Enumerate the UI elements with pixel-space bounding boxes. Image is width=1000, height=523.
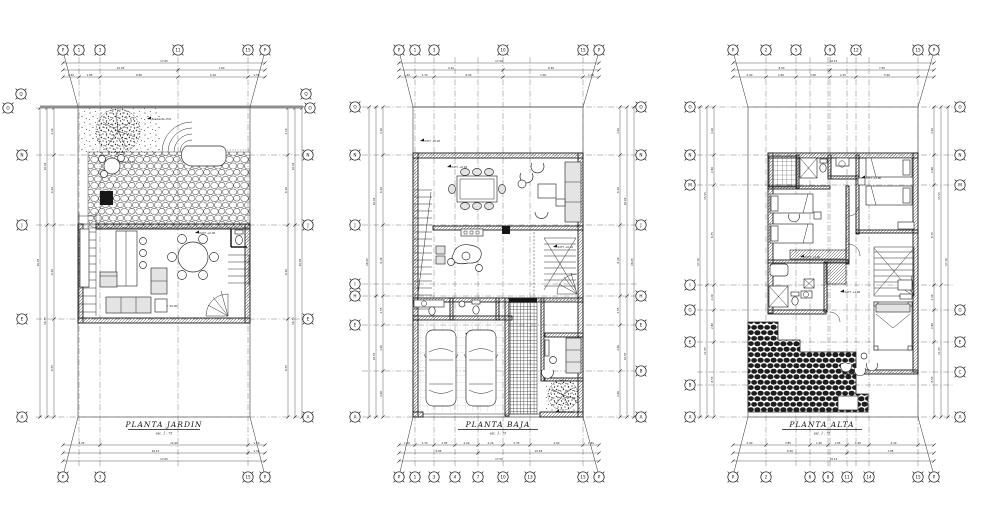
dimension-label: 8.75 (930, 232, 934, 238)
dimension-label: 6.55 (710, 376, 714, 382)
level-note: N.P.T. +2.80 (845, 290, 861, 294)
grid-bubble: P (394, 45, 405, 56)
dimension-label: 15.55 (703, 192, 707, 200)
grid-bubble: P (594, 472, 605, 483)
svg-text:A: A (21, 415, 24, 420)
svg-text:J: J (20, 223, 22, 228)
svg-text:1: 1 (414, 48, 417, 53)
grid-bubble: P (728, 45, 739, 56)
dimension-label: 1.65 (835, 441, 841, 445)
grid-bubble: 3 (429, 472, 440, 483)
grid-bubble: P (594, 45, 605, 56)
dimension-label: 8.50 (779, 66, 785, 70)
svg-text:3: 3 (99, 475, 102, 480)
dimension-label: 10.55 (372, 352, 376, 360)
svg-text:B: B (689, 383, 692, 388)
grid-bubble: E (636, 320, 647, 331)
svg-text:B: B (640, 369, 643, 374)
dimension-label: 6.10 (379, 187, 383, 193)
grid-bubble: 9 (825, 45, 836, 56)
svg-text:E: E (354, 323, 357, 328)
grid-bubble: 3 (95, 45, 106, 56)
dimension-label: 7.00 (540, 73, 546, 77)
dimension-label: 2.20 (930, 294, 934, 300)
grid-bubble: 11 (173, 45, 184, 56)
svg-text:1: 1 (414, 475, 417, 480)
dimension-label: 1.40 (588, 73, 594, 77)
dimension-label: 11.55 (937, 347, 941, 355)
dimension-label: 2.90 (747, 73, 753, 77)
svg-text:10: 10 (500, 475, 506, 480)
svg-text:8: 8 (827, 475, 830, 480)
svg-text:12: 12 (853, 48, 859, 53)
dimension-label: 1.70 (422, 73, 428, 77)
svg-text:N: N (306, 153, 309, 158)
svg-text:J: J (639, 223, 641, 228)
dimension-label: 8.75 (710, 232, 714, 238)
dimension-label: 17.65 (160, 59, 168, 63)
dimension-label: 7.65 (879, 66, 885, 70)
grid-bubble: 15 (578, 45, 589, 56)
dimension-label: 15.55 (937, 192, 941, 200)
plan-scale-1: esc. 1 : 75 (156, 432, 173, 436)
svg-text:11: 11 (844, 475, 850, 480)
dimension-label: 2.80 (710, 323, 714, 329)
planter-box (100, 191, 113, 205)
entry-threshold (509, 298, 537, 302)
grid-bubble: J (636, 220, 647, 231)
dimension-label: 4.60 (554, 441, 560, 445)
svg-text:G: G (958, 308, 961, 313)
dimension-label: 6.85 (436, 449, 442, 453)
grid-bubble: 3 (429, 45, 440, 56)
plan-scale-2: esc. 1 : 75 (490, 432, 507, 436)
dimension-label: 6.10 (284, 187, 288, 193)
dimension-label: 6.20 (379, 257, 383, 263)
svg-text:N: N (353, 153, 356, 158)
grid-bubble: J (17, 220, 28, 231)
grid-bubble: P (260, 45, 271, 56)
dimension-label: 6.10 (616, 187, 620, 193)
grid-bubble: 1 (410, 472, 421, 483)
dimension-label: 26.95 (298, 258, 302, 266)
terrace-opening (838, 396, 858, 410)
dimension-label: 26.95 (630, 258, 634, 266)
svg-text:A: A (640, 415, 643, 420)
grid-bubble: O (955, 102, 966, 113)
dimension-label: 10.65 (535, 449, 543, 453)
svg-text:7: 7 (477, 475, 480, 480)
dimension-label: 12.90 (170, 441, 178, 445)
svg-text:15: 15 (915, 475, 921, 480)
dimension-label: 8.20 (284, 269, 288, 275)
car-2 (464, 330, 498, 406)
blueprint-sheet: 1.401.856.806.101.5010.057.6017.653.2512… (0, 0, 1000, 523)
dimension-label: 4.10 (284, 128, 288, 134)
grid-bubble: P (58, 472, 69, 483)
dimension-label: 7.60 (219, 66, 225, 70)
grid-bubble: A (955, 412, 966, 423)
dimension-label: 27.10 (944, 258, 948, 266)
level-note: N.P.T. +0.45 (558, 245, 574, 249)
grid-bubble: N (685, 150, 696, 161)
dimension-label: 8.55 (284, 365, 288, 371)
closet-hatch-block (826, 262, 846, 284)
grid-bubble: 2 (761, 45, 772, 56)
svg-text:2: 2 (765, 475, 768, 480)
svg-text:4: 4 (454, 475, 457, 480)
grid-bubble: E (685, 337, 696, 348)
svg-text:E: E (689, 340, 692, 345)
dimension-label: 11.55 (703, 347, 707, 355)
dimension-label: 1.60 (816, 441, 822, 445)
grid-bubble: E (17, 314, 28, 325)
dimension-label: 4.10 (50, 128, 54, 134)
svg-text:A: A (354, 415, 357, 420)
grid-bubble: A (636, 412, 647, 423)
grid-bubble: O (3, 103, 14, 114)
level-note: N.P.T. +0.30 (200, 231, 216, 235)
toilet-1 (235, 230, 243, 245)
dimension-label: 10.55 (623, 352, 627, 360)
svg-text:3: 3 (433, 475, 436, 480)
dimension-label: 4.00 (379, 391, 383, 397)
svg-text:H: H (639, 294, 642, 299)
grid-bubble: 11 (842, 472, 853, 483)
master-bed (874, 302, 912, 350)
dimension-label: 26.95 (365, 258, 369, 266)
dimension-label: 16.15 (830, 457, 838, 461)
dimension-label: 2.55 (379, 307, 383, 313)
plan-title-2: PLANTA BAJA (465, 420, 531, 429)
grid-bubble: 15 (243, 45, 254, 56)
grid-bubble: Q (301, 89, 312, 100)
dimension-label: 10.20 (291, 162, 295, 170)
grid-bubble: H (350, 291, 361, 302)
dimension-label: 16.75 (43, 317, 47, 325)
dimension-label: 10.20 (43, 162, 47, 170)
grid-bubble: H (636, 291, 647, 302)
grid-bubble: P (929, 472, 940, 483)
grid-bubble: M (955, 180, 966, 191)
dimension-label: 6.55 (930, 376, 934, 382)
dimension-label: 2.20 (488, 441, 494, 445)
grid-bubble: 4 (450, 472, 461, 483)
dimension-label: 2.25 (840, 73, 846, 77)
dimension-label: 2.35 (514, 441, 520, 445)
grid-bubble: 3 (95, 472, 106, 483)
grid-bubble: O (305, 103, 316, 114)
grid-bubble: A (350, 412, 361, 423)
dimension-label: 8.55 (50, 365, 54, 371)
floor-plan-drawing: 1.401.856.806.101.5010.057.6017.653.2512… (0, 0, 1000, 523)
svg-text:E: E (640, 323, 643, 328)
dimension-label: 16.40 (623, 197, 627, 205)
svg-text:N: N (639, 153, 642, 158)
dimension-label: 3.25 (79, 441, 85, 445)
grid-bubble: I (685, 280, 696, 291)
grid-bubble: 10 (498, 45, 509, 56)
dimension-label: 5.40 (884, 73, 890, 77)
svg-text:3: 3 (433, 48, 436, 53)
grid-bubble: B (685, 380, 696, 391)
dimension-label: 17.50 (495, 457, 503, 461)
svg-text:E: E (307, 317, 310, 322)
dimension-label: 6.00 (466, 73, 472, 77)
grid-bubble: N (17, 150, 28, 161)
grid-bubble: O (685, 102, 696, 113)
svg-text:A: A (959, 415, 962, 420)
grid-bubble: P (394, 472, 405, 483)
grid-bubble: N (350, 150, 361, 161)
grid-bubble: 1 (74, 45, 85, 56)
grid-bubble: 15 (913, 45, 924, 56)
grid-bubble: Q (16, 89, 27, 100)
dimension-label: 10.05 (117, 66, 125, 70)
dimension-label: 2.00 (464, 441, 470, 445)
grid-bubble: A (685, 412, 696, 423)
grid-bubble: N (955, 150, 966, 161)
dimension-label: 6.80 (136, 73, 142, 77)
dimension-label: 27.10 (696, 258, 700, 266)
grid-bubble: G (955, 305, 966, 316)
grid-bubble: 12 (851, 45, 862, 56)
svg-text:J: J (353, 223, 355, 228)
dimension-label: 17.50 (495, 59, 503, 63)
dimension-label: 6.10 (210, 73, 216, 77)
plan-title-1: PLANTA JARDIN (124, 420, 202, 429)
dimension-label: 1.40 (588, 441, 594, 445)
svg-text:15: 15 (915, 48, 921, 53)
grid-bubble: 8 (823, 472, 834, 483)
svg-text:9: 9 (829, 48, 832, 53)
grid-bubble: A (17, 412, 28, 423)
curved-planter (181, 146, 226, 166)
dimension-label: 4.20 (710, 128, 714, 134)
grid-bubble: N (303, 150, 314, 161)
svg-text:15: 15 (580, 475, 586, 480)
svg-text:N: N (958, 153, 961, 158)
svg-text:G: G (688, 308, 691, 313)
closet-hatch-band (790, 250, 846, 259)
dimension-label: 4.00 (379, 345, 383, 351)
grid-bubble: 14 (864, 472, 875, 483)
dimension-label: 2.60 (710, 167, 714, 173)
grid-bubble: 2 (761, 472, 772, 483)
grid-bubble: E (955, 337, 966, 348)
dimension-label: 17.65 (160, 457, 168, 461)
svg-text:E: E (959, 340, 962, 345)
svg-text:10: 10 (500, 48, 506, 53)
grid-bubble: 15 (913, 472, 924, 483)
dimension-label: 2.60 (930, 167, 934, 173)
column-pier (502, 226, 510, 234)
grid-bubble: G (685, 305, 696, 316)
grid-bubble: 6 (805, 472, 816, 483)
svg-text:15: 15 (245, 48, 251, 53)
dimension-label: 26.95 (36, 258, 40, 266)
plan-scale-3: esc. 1 : 75 (814, 432, 831, 436)
skylight-grille (769, 156, 797, 187)
svg-text:1: 1 (78, 48, 81, 53)
grid-bubble: P (728, 472, 739, 483)
dimension-label: 4.00 (616, 345, 620, 351)
grid-bubble: N (636, 150, 647, 161)
dimension-label: 9.10 (448, 66, 454, 70)
dimension-label: 16.15 (830, 59, 838, 63)
svg-text:H: H (353, 294, 356, 299)
grid-bubble: B (636, 366, 647, 377)
grid-bubble: 1 (410, 45, 421, 56)
svg-text:A: A (307, 415, 310, 420)
grid-bubble: J (350, 220, 361, 231)
dimension-label: 8.40 (548, 66, 554, 70)
grid-bubble: J (303, 220, 314, 231)
grid-bubble: P (260, 472, 271, 483)
plan-title-3: PLANTA ALTA (788, 420, 854, 429)
grid-bubble: O (350, 102, 361, 113)
dimension-label: 2.80 (930, 323, 934, 329)
grid-bubble: 7 (473, 472, 484, 483)
grid-bubble: E (350, 320, 361, 331)
grid-bubble: C (955, 367, 966, 378)
entry-walkway (509, 302, 537, 414)
svg-text:13: 13 (527, 475, 533, 480)
grid-bubble: 5 (791, 45, 802, 56)
sheet-background (0, 0, 1000, 523)
svg-text:3: 3 (99, 48, 102, 53)
svg-text:6: 6 (809, 475, 812, 480)
grid-bubble: I (350, 279, 361, 290)
dimension-label: 2.60 (778, 73, 784, 77)
dimension-label: 1.85 (442, 441, 448, 445)
grid-bubble: P (929, 45, 940, 56)
dimension-label: 2.90 (747, 441, 753, 445)
dimension-label: 6.10 (50, 187, 54, 193)
dimension-label: 2.55 (616, 307, 620, 313)
entry-garden (545, 380, 581, 412)
dimension-label: 4.20 (379, 128, 383, 134)
dimension-label: 1.90 (855, 441, 861, 445)
dimension-label: 4.20 (930, 128, 934, 134)
svg-text:N: N (20, 153, 23, 158)
grid-bubble: E (303, 314, 314, 325)
grid-bubble: M (685, 180, 696, 191)
svg-text:11: 11 (175, 48, 181, 53)
grid-bubble: 15 (578, 472, 589, 483)
svg-text:I: I (689, 283, 690, 288)
svg-text:J: J (306, 223, 308, 228)
garden-tree (96, 109, 140, 153)
dimension-label: 16.40 (372, 197, 376, 205)
svg-text:5: 5 (795, 48, 798, 53)
dimension-label: 1.85 (87, 73, 93, 77)
svg-text:M: M (688, 183, 692, 188)
dimension-label: 8.20 (50, 269, 54, 275)
dimension-label: 4.30 (891, 441, 897, 445)
svg-text:2: 2 (765, 48, 768, 53)
dimension-label: 16.75 (291, 317, 295, 325)
garage (419, 320, 505, 412)
grid-bubble: 10 (498, 472, 509, 483)
dimension-label: 2.20 (710, 294, 714, 300)
svg-text:15: 15 (580, 48, 586, 53)
grid-bubble: 13 (525, 472, 536, 483)
dimension-label: 7.85 (888, 449, 894, 453)
dimension-label: 3.00 (810, 73, 816, 77)
dimension-label: 4.00 (616, 391, 620, 397)
svg-text:M: M (958, 183, 962, 188)
grid-bubble: A (303, 412, 314, 423)
svg-text:N: N (688, 153, 691, 158)
dimension-label: 1.70 (422, 441, 428, 445)
svg-text:I: I (354, 282, 355, 287)
grid-bubble: P (58, 45, 69, 56)
dimension-label: 16.15 (152, 449, 160, 453)
svg-text:A: A (689, 415, 692, 420)
svg-text:C: C (959, 370, 962, 375)
svg-text:15: 15 (245, 475, 251, 480)
svg-text:14: 14 (866, 475, 872, 480)
level-note: N.P.T. +0.45 (425, 139, 441, 143)
svg-text:E: E (21, 317, 24, 322)
grid-bubble: O (636, 102, 647, 113)
car-1 (424, 330, 458, 406)
grid-bubble: 15 (243, 472, 254, 483)
dimension-label: 4.20 (616, 128, 620, 134)
dimension-label: 6.20 (616, 257, 620, 263)
dimension-label: 3.85 (785, 441, 791, 445)
dimension-label: 8.30 (787, 449, 793, 453)
